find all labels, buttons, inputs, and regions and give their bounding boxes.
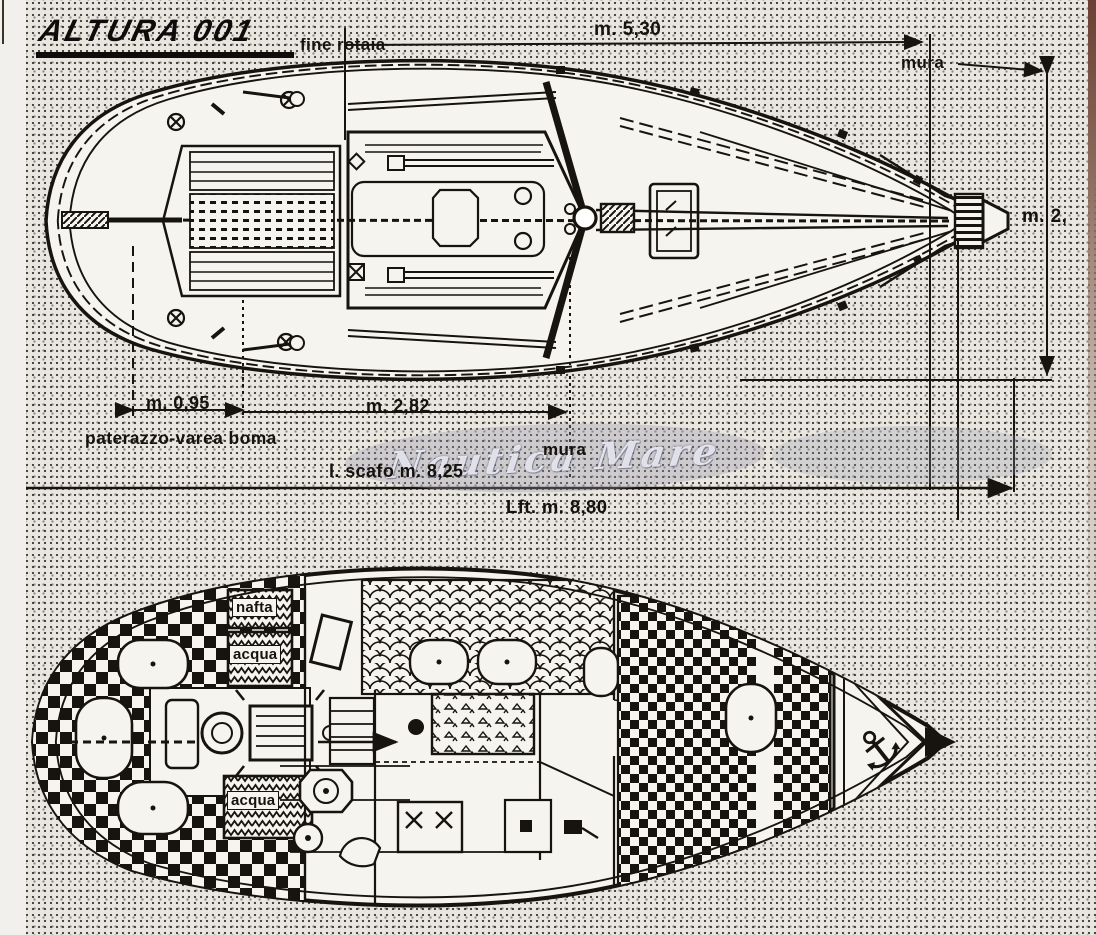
aft-seat (166, 700, 198, 768)
label-paterazzo: paterazzo-varea boma (85, 428, 277, 449)
boat-model-logo: ALTURA 001 (36, 13, 259, 49)
twin-sinks (398, 802, 462, 852)
cockpit-sole (190, 194, 334, 248)
interior-plan: ⚓ (30, 569, 956, 915)
chart-seat-cushion (432, 694, 534, 754)
logo-underline (36, 52, 294, 58)
stem-fitting (983, 200, 1008, 242)
label-acqua-tank-aft: acqua (228, 792, 278, 809)
dim-530-line (345, 42, 922, 45)
dim-label-282: m. 2,82 (366, 396, 430, 417)
tiller-grip (62, 212, 108, 228)
dim-label-lft: Lft. m. 8,80 (506, 496, 607, 518)
dim-label-beam: m. 2, (1022, 206, 1067, 228)
deck-plan (46, 61, 1008, 380)
label-mura-top: mura (901, 53, 944, 73)
scan-left-margin (0, 0, 26, 935)
dim-label-095: m. 0,95 (146, 393, 210, 414)
bow-roller (955, 194, 983, 248)
companionway-hatch (433, 190, 478, 246)
label-mura-bottom: mura (543, 440, 586, 460)
mast (574, 207, 596, 229)
label-acqua-tank-fwd: acqua (230, 646, 280, 663)
scan-crease-mark (2, 0, 4, 44)
dim-label-scafo: l. scafo m. 8,25 (329, 461, 463, 482)
bow-tip (925, 727, 956, 757)
label-nafta-tank: nafta (233, 599, 276, 616)
boat-plan-drawing: ⚓ (0, 0, 1096, 935)
label-fine-rotaia: fine rotaia (300, 35, 386, 55)
dim-label-530: m. 5,30 (594, 19, 661, 41)
deck-fill-cross (348, 264, 364, 280)
beam-leader (958, 64, 1042, 71)
mast-post (408, 719, 424, 735)
head-sink (584, 648, 618, 696)
grabrail-car-top (388, 156, 404, 170)
mast-step-hatch (601, 204, 634, 232)
grabrail-car-bottom (388, 268, 404, 282)
scan-photo-edge (1088, 0, 1096, 935)
scanned-boat-plan-page: ⚓ Nautica Mare ALTURA 001 fine rotaia m.… (0, 0, 1096, 935)
